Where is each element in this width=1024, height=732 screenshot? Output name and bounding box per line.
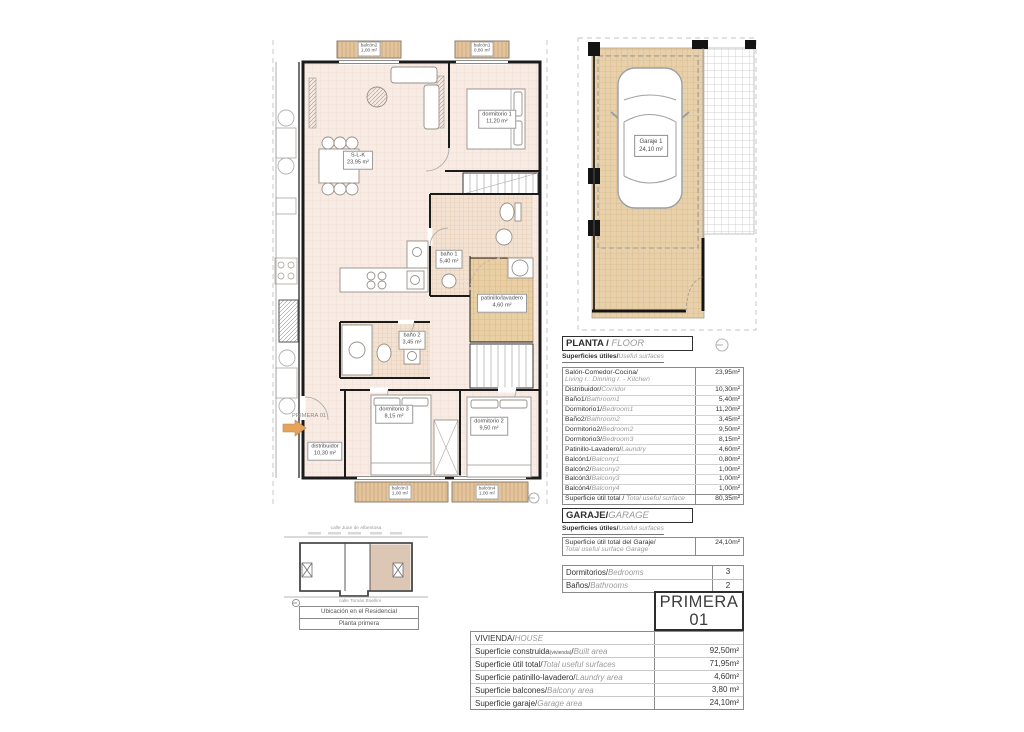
balcony-name: balcón4 xyxy=(479,486,496,491)
row-value: 71,95m² xyxy=(654,658,743,670)
row-value: 92,50m² xyxy=(654,645,743,657)
table-row: Baños/Bathrooms 2 xyxy=(563,579,743,593)
planta-title-en: FLOOR xyxy=(611,338,644,349)
room-label-distribuidor: distribuidor 10,30 m² xyxy=(307,442,342,461)
section-marker-icon xyxy=(529,493,539,503)
garaje-title-en: GARAGE xyxy=(608,510,649,521)
subtitle-en: Useful surfaces xyxy=(618,525,663,532)
table-row: Dormitorio2/Bedroom2 9,50m² xyxy=(563,424,743,434)
street-label-top: calle Juan de Albentosa xyxy=(331,526,382,531)
balcony-name: balcón3 xyxy=(392,486,409,491)
room-label-patinillo: patinillo/lavadero 4,60 m² xyxy=(477,294,527,313)
row-label-es: Baño2/ xyxy=(565,416,587,423)
table-row: Patinillo-Lavadero/Laundry 4,60m² xyxy=(563,444,743,454)
row-label-en: Laundry xyxy=(621,446,646,453)
room-area: 23,95 m² xyxy=(347,160,369,166)
table-row: Balcón4/Balcony4 1,00m² xyxy=(563,484,743,494)
row-label-es: Superficie útil total del Garaje/ xyxy=(565,539,693,547)
subtitle-es: Superficies útiles/ xyxy=(562,353,618,360)
row-label-es: Superficie útil total / xyxy=(565,495,626,502)
table-row: Dormitorio1/Bedroom1 11,20m² xyxy=(563,405,743,415)
row-value: 10,30m² xyxy=(695,386,743,395)
plot-ticks xyxy=(308,532,402,535)
balcony-area: 1,00 m² xyxy=(392,492,408,497)
location-caption-2: Planta primera xyxy=(299,618,419,631)
row-label-es: Salón-Comedor-Cocina/ xyxy=(565,369,693,377)
location-diagram-drawing xyxy=(284,532,428,607)
row-label-es: Dormitorios/ xyxy=(566,568,608,577)
unit-badge-line2: 01 xyxy=(689,611,708,629)
row-value: 4,60m² xyxy=(654,671,743,683)
room-label-bano2: baño 2 3,45 m² xyxy=(399,331,426,350)
row-label-en: Bedroom2 xyxy=(602,426,633,433)
row-label-en: Bedrooms xyxy=(608,568,644,577)
row-value: 1,00m² xyxy=(695,485,743,494)
table-row: Salón-Comedor-Cocina/Living r.: Dinning … xyxy=(563,368,743,385)
table-row-total: Superficie útil total / Total useful sur… xyxy=(563,494,743,504)
room-label-dormitorio1: dormitorio 1 11,20 m² xyxy=(478,110,516,129)
balcony-name: balcón2 xyxy=(361,43,378,48)
balcony-label-2: balcón2 1,00 m² xyxy=(358,42,381,57)
row-value: 9,50m² xyxy=(695,425,743,434)
room-label-slk: S-L-K 23,95 m² xyxy=(343,151,373,170)
row-label-en: Balcony3 xyxy=(591,475,619,482)
planta-title-es: PLANTA / xyxy=(566,338,611,349)
room-area: 3,45 m² xyxy=(403,340,422,346)
row-label-es: Balcón2/ xyxy=(565,466,591,473)
garage-space-label: Garaje 1 24,10 m² xyxy=(634,135,668,157)
common-area-furniture xyxy=(275,110,297,414)
balcony-area: 0,80 m² xyxy=(474,49,490,54)
room-name: dormitorio 1 xyxy=(482,112,512,118)
planta-subtitle: Superficies útiles/Useful surfaces xyxy=(562,353,664,363)
row-label-es: Dormitorio2/ xyxy=(565,426,602,433)
balcony-area: 1,00 m² xyxy=(361,49,377,54)
row-label-en: Balcony4 xyxy=(591,485,619,492)
row-value: 3,45m² xyxy=(695,416,743,425)
subtitle-en: Useful surfaces xyxy=(618,353,663,360)
row-label-es: Patinillo-Lavadero/ xyxy=(565,446,621,453)
row-label-en: Laundry area xyxy=(576,673,623,682)
room-label-dormitorio2: dormitorio 2 9,50 m² xyxy=(470,417,508,436)
table-row: Superficie útil total del Garaje/Total u… xyxy=(563,538,743,555)
table-row: Balcón3/Balcony3 1,00m² xyxy=(563,474,743,484)
row-label-en: Bathroom1 xyxy=(587,396,620,403)
row-label-es: Balcón1/ xyxy=(565,456,591,463)
vivienda-title-en: HOUSE xyxy=(515,634,543,643)
table-header-row: VIVIENDA/HOUSE xyxy=(471,632,743,644)
table-row: Dormitorios/Bedrooms 3 xyxy=(563,566,743,579)
row-value: 11,20m² xyxy=(695,406,743,415)
row-label-es: Baños/ xyxy=(566,581,590,590)
row-label-es: Balcón3/ xyxy=(565,475,591,482)
table-row: Baño1/Bathroom1 5,40m² xyxy=(563,395,743,405)
table-row: Superficie patinillo-lavadero/Laundry ar… xyxy=(471,670,743,683)
table-row: Balcón1/Balcony1 0,80m² xyxy=(563,454,743,464)
room-name: baño 1 xyxy=(440,252,457,258)
row-label-en: Bedroom3 xyxy=(602,436,633,443)
row-label-sub: (vivienda) xyxy=(550,650,572,656)
table-row: Superficie balcones/Balcony area 3,80 m² xyxy=(471,683,743,696)
row-label-es: Superficie garaje/ xyxy=(475,699,537,708)
row-label-es: Superficie balcones/ xyxy=(475,686,547,695)
row-value: 80,35m² xyxy=(695,495,743,504)
row-value: 1,00m² xyxy=(695,475,743,484)
row-value xyxy=(654,632,743,644)
row-label-en: Bathrooms xyxy=(590,581,628,590)
street-label-bottom: calle Tomás Boellini xyxy=(339,599,381,604)
garaje-subtitle: Superficies útiles/Useful surfaces xyxy=(562,525,664,535)
vivienda-title-es: VIVIENDA/ xyxy=(475,634,515,643)
row-value: 3 xyxy=(712,566,743,579)
table-row: Dormitorio3/Bedroom3 8,15m² xyxy=(563,434,743,444)
row-label-es: Dormitorio1/ xyxy=(565,406,602,413)
room-area: 5,40 m² xyxy=(440,259,459,265)
balcony-label-1: balcón1 0,80 m² xyxy=(471,42,494,57)
balcony-name: balcón1 xyxy=(474,43,491,48)
room-label-bano1: baño 1 5,40 m² xyxy=(436,250,463,269)
room-name: patinillo/lavadero xyxy=(481,296,523,302)
elevator-shaft xyxy=(279,300,298,342)
row-label-en: Total useful surface xyxy=(626,495,685,502)
room-name: distribuidor xyxy=(311,444,338,450)
balcony-label-3: balcón3 1,00 m² xyxy=(389,485,412,500)
orientation-marker-icon xyxy=(716,339,728,351)
row-value: 0,80m² xyxy=(695,455,743,464)
table-row: Balcón2/Balcony2 1,00m² xyxy=(563,464,743,474)
table-row: Superficie construida(vivienda)/Built ar… xyxy=(471,644,743,657)
room-name: baño 2 xyxy=(403,333,420,339)
plan-sheet: S-L-K 23,95 m² dormitorio 1 11,20 m² bañ… xyxy=(0,0,1024,732)
room-area: 11,20 m² xyxy=(486,119,508,125)
room-area: 9,50 m² xyxy=(480,426,499,432)
room-area: 4,60 m² xyxy=(493,303,512,309)
row-label-en: Built area xyxy=(574,647,608,656)
row-label-en: Bathroom2 xyxy=(587,416,620,423)
room-name: S-L-K xyxy=(351,153,365,159)
row-value: 24,10m² xyxy=(695,538,743,555)
entry-floor-label: PRIMERA 01 xyxy=(292,413,326,419)
row-label-en: Total useful surfaces xyxy=(543,660,616,669)
unit-badge-line1: PRIMERA xyxy=(660,593,739,611)
garaje-title-es: GARAJE/ xyxy=(566,510,608,521)
row-label-es: Baño1/ xyxy=(565,396,587,403)
row-label-en: Garage area xyxy=(537,699,582,708)
row-value: 4,60m² xyxy=(695,445,743,454)
row-label-es: Dormitorio3/ xyxy=(565,436,602,443)
row-label-es: Balcón4/ xyxy=(565,485,591,492)
garaje-table: Superficie útil total del Garaje/Total u… xyxy=(562,537,744,556)
planta-header: PLANTA / FLOOR xyxy=(562,336,693,351)
row-label-en: Corridor xyxy=(601,386,626,393)
row-value: 1,00m² xyxy=(695,465,743,474)
room-area: 10,30 m² xyxy=(314,451,336,457)
row-label-en: Bedroom1 xyxy=(602,406,633,413)
row-label-en: Balcony area xyxy=(547,686,594,695)
row-label-en: Living r.: Dinning r. - Kitchen xyxy=(565,376,693,384)
row-label-en: Total useful surface Garage xyxy=(565,546,693,554)
row-value: 3,80 m² xyxy=(654,684,743,696)
row-value: 24,10m² xyxy=(654,697,743,709)
table-row: Baño2/Bathroom2 3,45m² xyxy=(563,415,743,425)
balcony-area: 1,00 m² xyxy=(479,492,495,497)
subtitle-es: Superficies útiles/ xyxy=(562,525,618,532)
unit-badge: PRIMERA 01 xyxy=(654,591,744,631)
garage-area: 24,10 m² xyxy=(639,147,663,153)
planta-table: Salón-Comedor-Cocina/Living r.: Dinning … xyxy=(562,367,744,505)
row-label-es: Distribuidor/ xyxy=(565,386,601,393)
row-value: 8,15m² xyxy=(695,435,743,444)
room-name: dormitorio 2 xyxy=(474,419,504,425)
table-row: Superficie útil total/Total useful surfa… xyxy=(471,657,743,670)
counts-table: Dormitorios/Bedrooms 3 Baños/Bathrooms 2 xyxy=(562,565,744,593)
row-value: 5,40m² xyxy=(695,396,743,405)
row-label-en: Balcony1 xyxy=(591,456,619,463)
garaje-header: GARAJE/GARAGE xyxy=(562,508,693,523)
table-row: Superficie garaje/Garage area 24,10m² xyxy=(471,696,743,709)
balcony-label-4: balcón4 1,00 m² xyxy=(476,485,499,500)
row-label-es: Superficie útil total/ xyxy=(475,660,543,669)
row-value: 23,95m² xyxy=(695,368,743,385)
table-row: Distribuidor/Corridor 10,30m² xyxy=(563,385,743,395)
row-label-es: Superficie patinillo-lavadero/ xyxy=(475,673,576,682)
vivienda-table: VIVIENDA/HOUSE Superficie construida(viv… xyxy=(470,631,744,710)
room-area: 8,15 m² xyxy=(385,414,404,420)
row-label-en: Balcony2 xyxy=(591,466,619,473)
garage-name: Garaje 1 xyxy=(639,139,662,145)
garage-plan-drawing xyxy=(578,38,756,330)
highlighted-unit xyxy=(370,545,411,591)
room-name: dormitorio 3 xyxy=(379,407,409,413)
radiator xyxy=(309,78,316,128)
room-label-dormitorio3: dormitorio 3 8,15 m² xyxy=(375,405,413,424)
row-label-es: Superficie construida xyxy=(475,647,550,656)
